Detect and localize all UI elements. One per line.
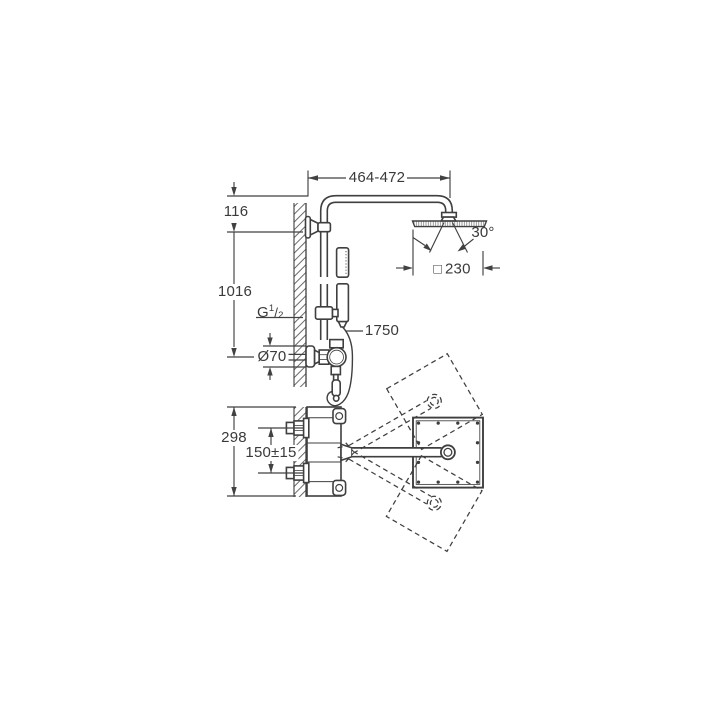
diverter-pull xyxy=(332,380,340,396)
dim-escutcheon-label: Ø70 xyxy=(256,349,289,365)
escutcheon xyxy=(306,346,315,367)
glide-holder xyxy=(316,307,333,319)
dim-inlet-spacing-label: 150±15 xyxy=(243,445,298,461)
head-size-label: □230 xyxy=(433,261,470,278)
dim-valve-height-label: 298 xyxy=(219,430,249,446)
head-size-value: 230 xyxy=(445,261,471,278)
lower-view xyxy=(286,354,483,552)
line-art xyxy=(0,0,720,720)
thread-prefix: G xyxy=(257,304,269,321)
dim-wall-offset-label: 116 xyxy=(222,204,251,220)
thread-denominator: 2 xyxy=(278,310,283,321)
hose-length-label: 1750 xyxy=(365,323,399,339)
square-symbol: □ xyxy=(433,261,442,277)
thread-size-label: G1/2 xyxy=(257,301,284,324)
dim-riser-height-label: 1016 xyxy=(216,284,254,300)
swivel-angle-label: 30° xyxy=(471,225,494,241)
technical-drawing-canvas: 464-472 116 1016 G1/2 Ø70 1750 30° □230 … xyxy=(0,0,720,720)
dim-top-width-label: 464-472 xyxy=(349,170,405,186)
